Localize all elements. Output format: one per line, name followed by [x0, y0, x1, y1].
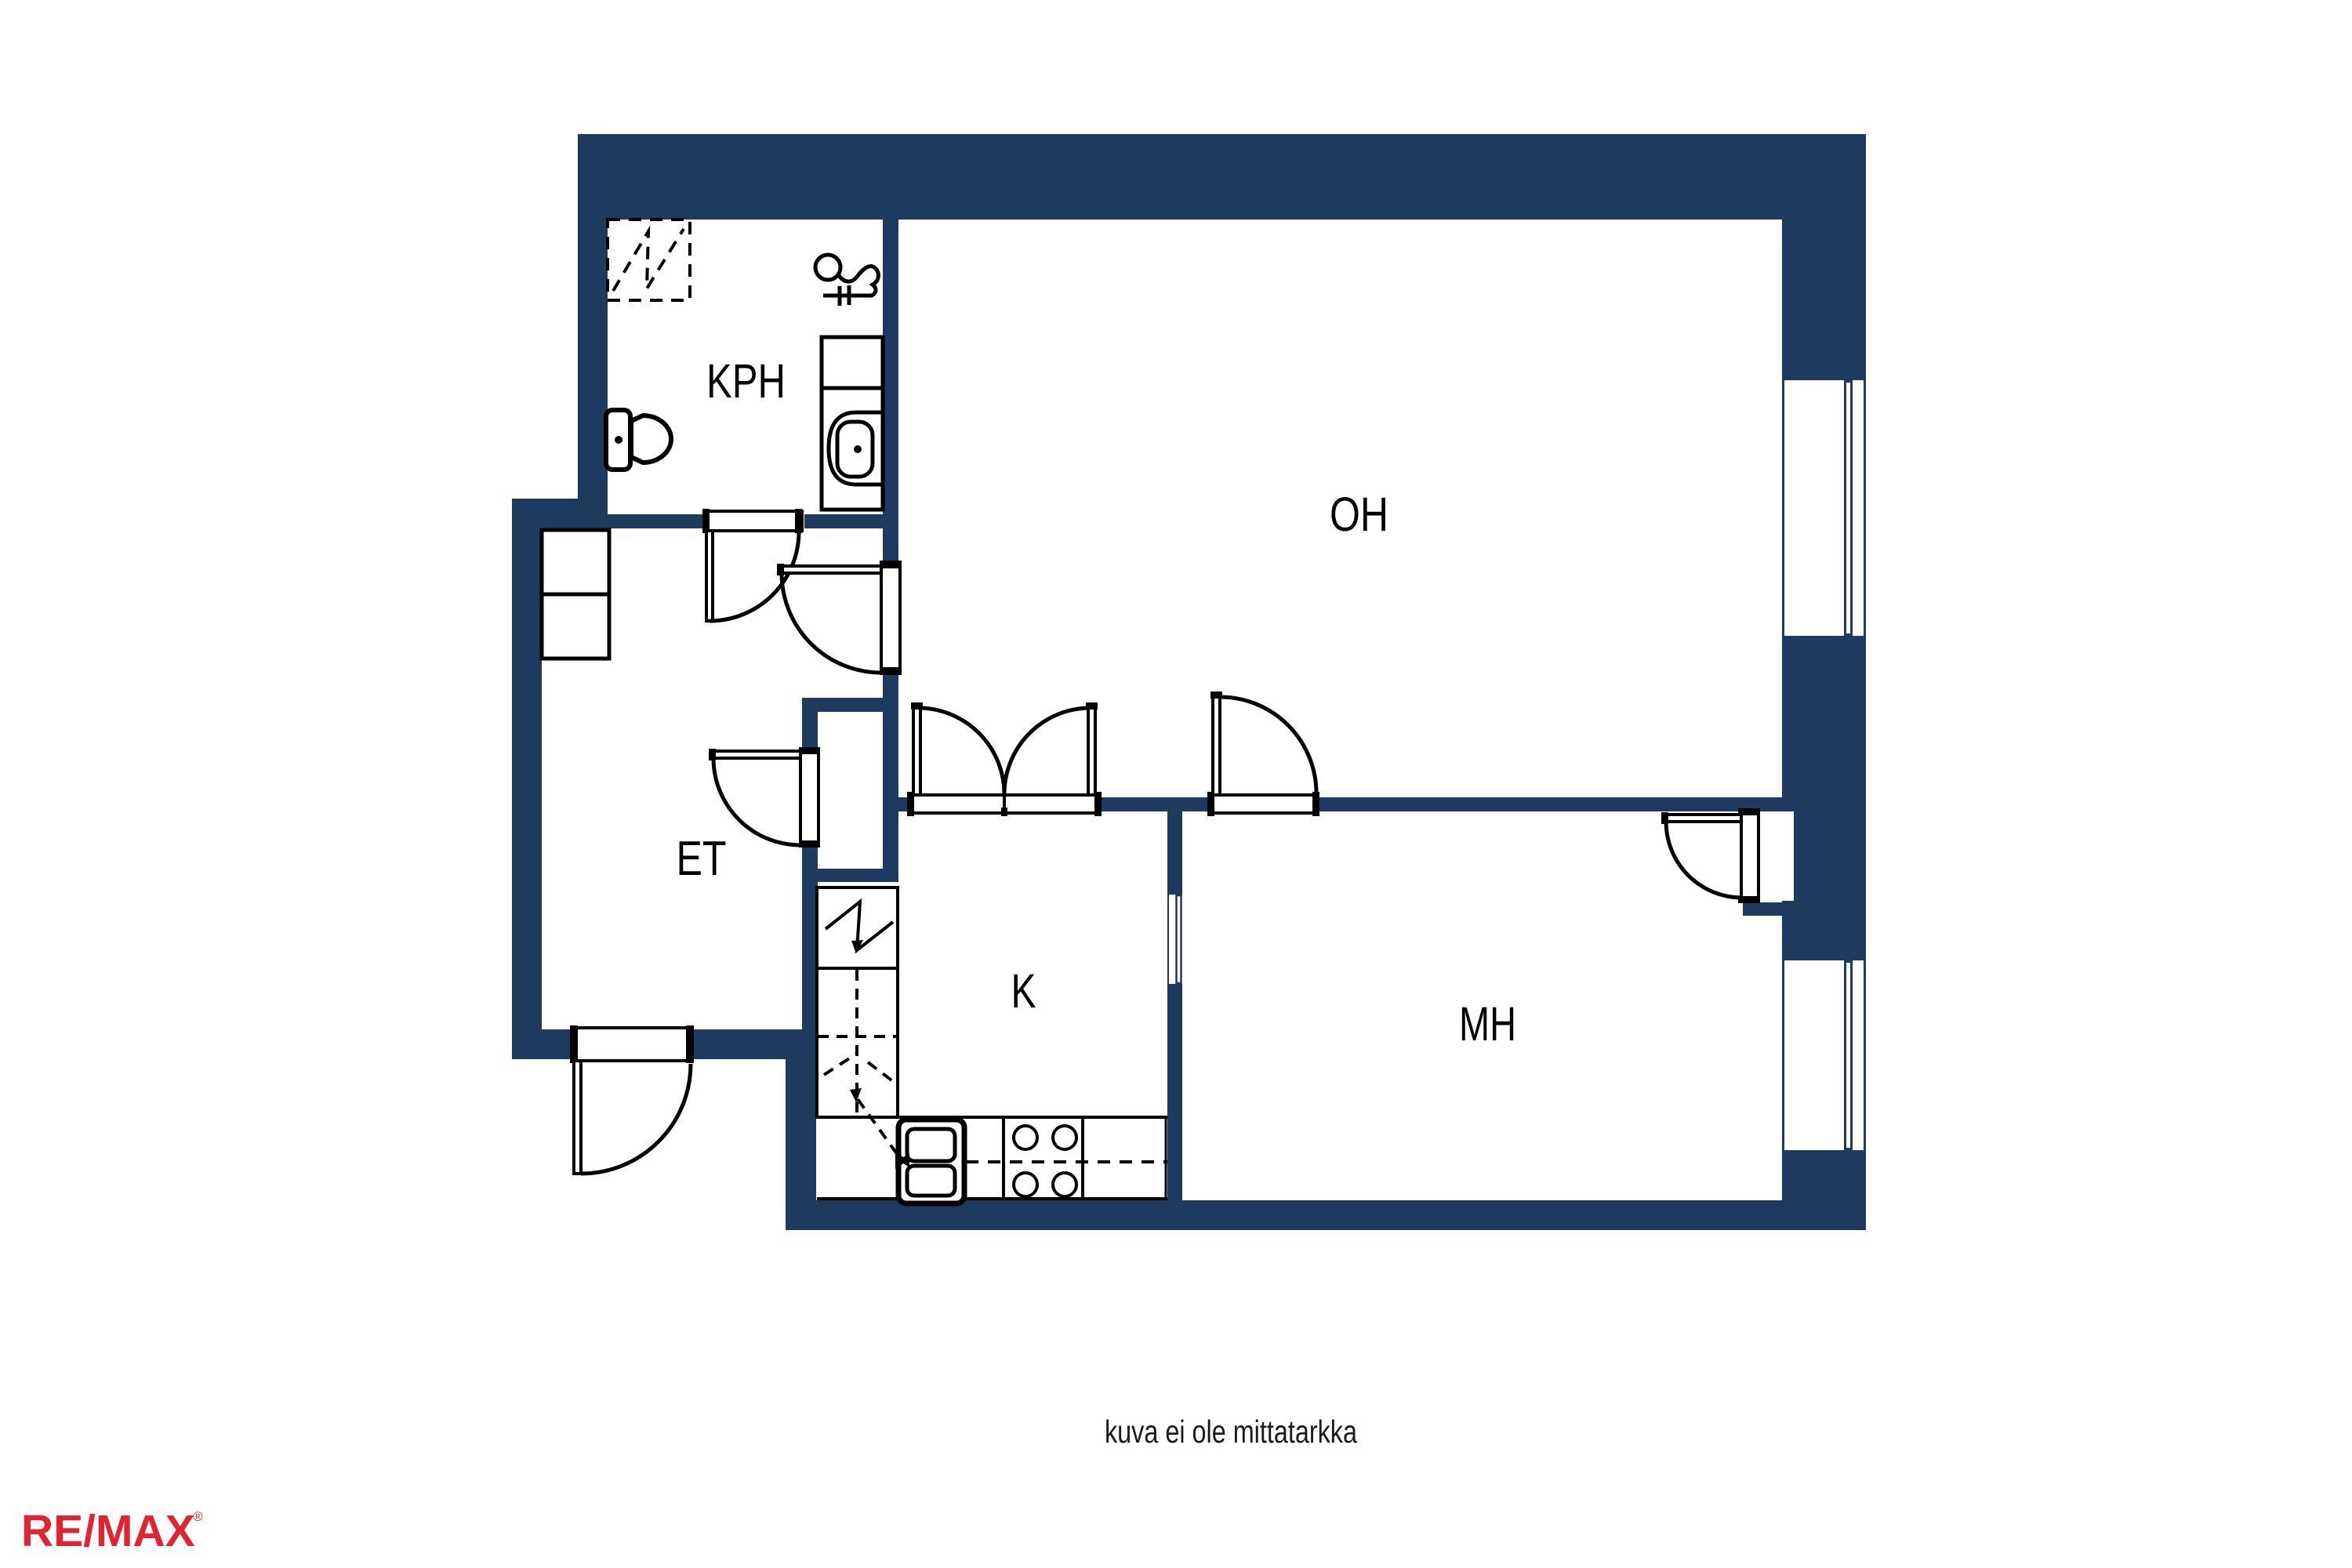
svg-text:K: K — [1011, 964, 1036, 1018]
svg-text:kuva ei ole mittatarkka: kuva ei ole mittatarkka — [1105, 1414, 1357, 1450]
svg-text:MH: MH — [1459, 997, 1516, 1051]
svg-text:ET: ET — [677, 832, 727, 886]
svg-text:KPH: KPH — [706, 354, 786, 408]
svg-text:RE/MAX: RE/MAX — [21, 1506, 195, 1556]
svg-text:OH: OH — [1330, 488, 1388, 541]
svg-text:®: ® — [193, 1509, 203, 1524]
